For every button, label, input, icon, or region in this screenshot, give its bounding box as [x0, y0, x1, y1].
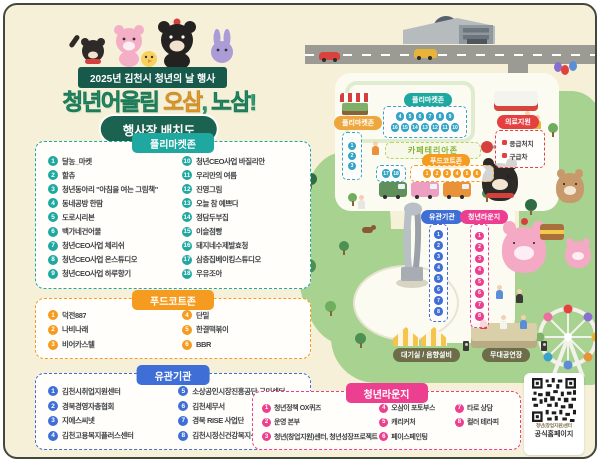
map-marker: 1: [348, 142, 357, 151]
performer-figure: [499, 315, 507, 329]
bear-muzzle: [514, 246, 534, 260]
list-item: 11 우리만의 여름: [182, 168, 306, 182]
list-item: 1 김천시취업지원센터: [48, 384, 178, 399]
item-label: 김천고용복지플러스센터: [62, 430, 134, 441]
list-item: 3 지에스씨넷: [48, 414, 178, 429]
item-label: 비어카스텔: [62, 339, 95, 350]
list-item: 4 동네공방 한땀: [48, 196, 182, 210]
balloons: [561, 65, 569, 75]
item-label: 우유조아: [196, 268, 222, 279]
item-label: 청년동아리 "아침을 여는 그림책": [62, 184, 158, 195]
list-item: 5 한결떡볶이: [182, 323, 306, 338]
map-flea-small-label: 플리마켓존: [334, 116, 382, 130]
item-number: 4: [48, 198, 58, 208]
cafeteria-visitor: [371, 141, 379, 155]
item-number: 8: [455, 418, 464, 427]
list-item: 18 우유조아: [182, 267, 306, 281]
map-food-court-markers: 123456: [410, 165, 494, 182]
stall-awning: [340, 93, 370, 102]
qr-caption-line2: 공식홈페이지: [535, 429, 574, 439]
map-marker: 3: [475, 255, 484, 264]
red-car: [319, 52, 340, 60]
poster-page: 플리마켓존 123 플리마켓존 456789 16151413121110 카페…: [0, 0, 600, 462]
map-marker: 4: [475, 266, 484, 275]
item-label: 청년CEO사업 바질리안: [196, 156, 265, 167]
item-number: 14: [182, 212, 192, 222]
item-number: 4: [48, 431, 58, 441]
youth-lounge-panel-title: 청년라운지: [346, 383, 428, 403]
item-number: 13: [182, 198, 192, 208]
item-label: 타로 상담: [467, 403, 493, 413]
dancer-figure: [515, 289, 523, 303]
flea-market-panel-title: 플리마켓존: [132, 133, 214, 153]
food-court-panel: 푸드코트존 1 덕전887 2 나비나래 3 비어카스텔: [35, 298, 311, 359]
map-flea-main-box: 456789 16151413121110: [383, 106, 467, 138]
list-item: 4 오삼이 포토부스: [379, 401, 455, 415]
item-label: 캐리커처: [391, 417, 415, 427]
mascot-characters: [69, 17, 259, 69]
item-number: 5: [379, 418, 388, 427]
bear-scarf: [486, 193, 515, 198]
bear-eye: [507, 175, 510, 178]
list-item: 3 비어카스텔: [48, 337, 182, 352]
map-flea-main-label: 플리마켓존: [404, 93, 452, 107]
list-item: 15 이슬점빵: [182, 225, 306, 239]
list-item: 7 타로 상담: [455, 401, 517, 415]
tree: [548, 123, 558, 133]
dog-figure: [362, 227, 373, 233]
list-item: 3 청년(창업지원)센터, 청년성장프로젝트: [262, 430, 379, 444]
bear-ear: [503, 221, 516, 235]
map-marker: 17: [382, 169, 391, 178]
item-number: 5: [178, 386, 188, 396]
item-label: 나비나래: [62, 324, 88, 335]
item-number: 3: [48, 416, 58, 426]
tree: [348, 193, 357, 202]
item-number: 7: [48, 241, 58, 251]
map-marker: 8: [475, 312, 484, 321]
road: [305, 45, 597, 64]
map-youth-lounge-label: 청년라운지: [460, 210, 508, 224]
food-court-panel-title: 푸드코트존: [132, 290, 214, 310]
dancer-figure: [495, 285, 503, 299]
item-number: 6: [48, 227, 58, 237]
map-marker: 5: [434, 274, 443, 283]
item-label: 도로시리본: [62, 212, 95, 223]
item-label: 백가네건어물: [62, 226, 101, 237]
map-marker: 7: [426, 112, 435, 121]
item-label: 오삼이 포토부스: [391, 403, 435, 413]
brown-bear-mascot: [556, 173, 584, 203]
map-marker: 7: [475, 301, 484, 310]
item-number: 17: [182, 255, 192, 265]
bear-muzzle: [572, 252, 584, 260]
map-marker: 16: [391, 123, 400, 132]
bear-eye: [533, 242, 536, 245]
title-part-2: 오삼: [163, 90, 201, 115]
item-label: 동네공방 한땀: [62, 198, 103, 209]
item-number: 2: [262, 418, 271, 427]
cafeteria-table: [481, 141, 493, 153]
item-label: 돼지네수제발효청: [196, 240, 248, 251]
page-title: 청년어울림 오삼, 노삼!: [25, 85, 293, 117]
map-marker: 4: [396, 112, 405, 121]
bear-muzzle: [564, 186, 577, 195]
list-item: 17 삼층집베이킹스튜디오: [182, 253, 306, 267]
map-marker: 1: [423, 169, 432, 178]
map-marker: 3: [434, 252, 443, 261]
map-medical-box: 응급처치구급차: [495, 130, 545, 168]
item-label: 경북 RISE 사업단: [192, 415, 244, 426]
map-flea-side-markers: 1718: [376, 165, 406, 182]
ambulance: [494, 91, 538, 111]
map-marker: 15: [401, 123, 410, 132]
map-marker: 3: [348, 162, 357, 171]
speaker: [463, 341, 469, 351]
item-number: 1: [262, 404, 271, 413]
map-marker: 9: [446, 112, 455, 121]
bear-eye: [563, 183, 566, 186]
item-label: 경북경영자총협회: [62, 401, 114, 412]
map-marker: 2: [475, 243, 484, 252]
list-item: 10 청년CEO사업 바질리안: [182, 154, 306, 168]
map-marker: 11: [441, 123, 450, 132]
item-number: 9: [48, 269, 58, 279]
qr-panel: 청년(창업지원)센터 공식홈페이지: [524, 373, 584, 455]
map-medical-label: 의료지원: [497, 115, 539, 129]
item-number: 15: [182, 227, 192, 237]
yellow-car: [414, 49, 437, 58]
map-marker: 10: [451, 123, 460, 132]
map-marker: 5: [475, 278, 484, 287]
item-number: 2: [48, 170, 58, 180]
poster-frame: 플리마켓존 123 플리마켓존 456789 16151413121110 카페…: [3, 3, 597, 459]
tree: [339, 241, 349, 251]
bear-ear: [557, 169, 565, 178]
list-item: 1 달농_마켓: [48, 154, 182, 168]
stadium-building-illustration: [397, 13, 501, 47]
map-marker: 14: [411, 123, 420, 132]
item-number: 6: [379, 432, 388, 441]
map-organizations-label: 유관기관: [421, 210, 463, 224]
item-label: 삼층집베이킹스튜디오: [196, 254, 261, 265]
item-label: 컬러 테라피: [467, 417, 499, 427]
list-item: 16 돼지네수제발효청: [182, 239, 306, 253]
item-number: 4: [379, 404, 388, 413]
item-label: 청년정책 OX퀴즈: [274, 403, 321, 413]
item-label: 오늘 참 예쁘다: [196, 198, 238, 209]
item-number: 4: [182, 310, 192, 320]
list-item: 2 할츄: [48, 168, 182, 182]
item-number: 3: [262, 432, 271, 441]
item-number: 1: [48, 156, 58, 166]
bear-eye: [513, 242, 516, 245]
item-number: 8: [178, 431, 188, 441]
list-item: 1 청년정책 OX퀴즈: [262, 401, 379, 415]
item-label: BBR: [196, 340, 211, 349]
item-number: 7: [178, 416, 188, 426]
medical-service: 응급처치: [502, 138, 533, 148]
performer-figure: [519, 315, 527, 329]
list-item: 6 백가네건어물: [48, 225, 182, 239]
list-item: 4 단밀: [182, 308, 306, 323]
item-number: 3: [48, 184, 58, 194]
list-item: 14 정담두부집: [182, 210, 306, 224]
map-marker: 2: [348, 152, 357, 161]
list-item: 5 도로시리본: [48, 210, 182, 224]
road-center-line: [305, 54, 597, 56]
map-youth-lounge-markers: 12345678: [470, 224, 489, 328]
map-marker: 12: [431, 123, 440, 132]
item-number: 6: [178, 401, 188, 411]
item-number: 1: [48, 386, 58, 396]
flea-market-list: 1 달농_마켓 2 할츄 3 청년동아리 "아침을 여는 그림책" 4 동네공방…: [36, 142, 310, 288]
runner-figure: [357, 195, 365, 209]
map-marker: 6: [416, 112, 425, 121]
map-marker: 18: [392, 169, 401, 178]
item-number: 7: [455, 404, 464, 413]
map-marker: 7: [434, 296, 443, 305]
item-label: 정담두부집: [196, 212, 229, 223]
item-label: 덕전887: [62, 310, 86, 321]
title-part-3: , 노삼!: [202, 90, 256, 115]
small-pink-bear-mascot: [565, 241, 591, 268]
item-number: 12: [182, 184, 192, 194]
speaker: [541, 341, 547, 351]
list-item: 6 BBR: [182, 337, 306, 352]
list-item: 2 나비나래: [48, 323, 182, 338]
item-label: 이슬점빵: [196, 226, 222, 237]
list-item: 12 진영그림: [182, 182, 306, 196]
item-number: 10: [182, 156, 192, 166]
medical-service: 구급차: [502, 151, 527, 161]
tree: [525, 199, 537, 211]
item-label: 지에스씨넷: [62, 415, 95, 426]
item-label: 단밀: [196, 310, 209, 321]
map-flea-top-markers: 456789: [396, 112, 455, 121]
item-number: 1: [48, 310, 58, 320]
list-item: 8 청년CEO사업 온스튜디오: [48, 253, 182, 267]
item-label: 페이스페인팅: [391, 432, 427, 442]
item-label: 청년CEO사업 체리쉬: [62, 240, 124, 251]
map-organizations-markers: 12345678: [429, 224, 448, 322]
map-marker: 6: [434, 285, 443, 294]
list-item: 6 페이스페인팅: [379, 430, 455, 444]
item-label: 달농_마켓: [62, 156, 92, 167]
food-truck: [411, 182, 439, 197]
youth-lounge-panel: 청년라운지 1 청년정책 OX퀴즈 2 운영 본부 3 청년(창업지원)센터, …: [252, 391, 521, 450]
item-number: 3: [48, 340, 58, 350]
item-number: 8: [48, 255, 58, 265]
food-truck: [443, 182, 471, 197]
item-label: 운영 본부: [274, 417, 300, 427]
flea-market-panel: 플리마켓존 1 달농_마켓 2 할츄 3 청년동아리 "아침을 여는 그림책": [35, 141, 311, 289]
market-stall: [340, 93, 370, 115]
map-marker: 1: [475, 232, 484, 241]
title-part-1: 청년어울림: [62, 90, 163, 115]
bear-ear: [566, 238, 574, 246]
map-marker: 6: [473, 169, 482, 178]
map-marker: 5: [463, 169, 472, 178]
item-number: 5: [182, 325, 192, 335]
map-marker: 5: [406, 112, 415, 121]
map-marker: 2: [433, 169, 442, 178]
list-item: 5 캐리커처: [379, 415, 455, 429]
list-item: 7 청년CEO사업 체리쉬: [48, 239, 182, 253]
map-marker: 4: [434, 263, 443, 272]
map-stage-label: 무대공연장: [482, 348, 530, 362]
map-marker: 6: [475, 289, 484, 298]
food-truck: [379, 182, 407, 197]
item-label: 청년CEO사업 온스튜디오: [62, 254, 137, 265]
organizations-panel-title: 유관기관: [137, 365, 210, 385]
tree: [355, 333, 366, 344]
map-marker: 8: [434, 307, 443, 316]
item-label: 청년CEO사업 하루향기: [62, 268, 131, 279]
item-number: 2: [48, 325, 58, 335]
list-item: 2 경북경영자총협회: [48, 399, 178, 414]
map-marker: 1: [434, 230, 443, 239]
list-item: 3 청년동아리 "아침을 여는 그림책": [48, 182, 182, 196]
list-item: 8 컬러 테라피: [455, 415, 517, 429]
item-number: 2: [48, 401, 58, 411]
list-item: 13 오늘 참 예쁘다: [182, 196, 306, 210]
item-label: 우리만의 여름: [196, 170, 237, 181]
map-marker: 8: [436, 112, 445, 121]
map-marker: 2: [434, 241, 443, 250]
item-label: 청년(창업지원)센터, 청년성장프로젝트: [274, 432, 378, 442]
tree: [325, 301, 336, 312]
map-flea-bottom-markers: 16151413121110: [391, 123, 460, 132]
map-marker: 4: [453, 169, 462, 178]
item-number: 5: [48, 212, 58, 222]
item-number: 18: [182, 269, 192, 279]
list-item: 1 덕전887: [48, 308, 182, 323]
list-item: 9 청년CEO사업 하루향기: [48, 267, 182, 281]
treasure-chest: [540, 224, 564, 240]
list-item: 4 김천고용복지플러스센터: [48, 428, 178, 443]
item-label: 김천세무서: [192, 401, 225, 412]
stall-goods: [342, 103, 368, 115]
list-item: 2 운영 본부: [262, 415, 379, 429]
map-marker: 13: [421, 123, 430, 132]
item-number: 11: [182, 170, 192, 180]
map-marker: 3: [443, 169, 452, 178]
item-label: 김천시취업지원센터: [62, 386, 121, 397]
item-label: 진영그림: [196, 184, 222, 195]
map-flea-left-markers: 123: [342, 132, 362, 180]
item-label: 할츄: [62, 170, 75, 181]
map-waiting-room-label: 대기실 / 음향설비: [393, 348, 460, 362]
qr-code: [532, 378, 576, 422]
bear-eye: [575, 183, 578, 186]
item-number: 6: [182, 340, 192, 350]
bear-muzzle: [492, 179, 509, 190]
item-number: 16: [182, 241, 192, 251]
item-label: 한결떡볶이: [196, 324, 229, 335]
